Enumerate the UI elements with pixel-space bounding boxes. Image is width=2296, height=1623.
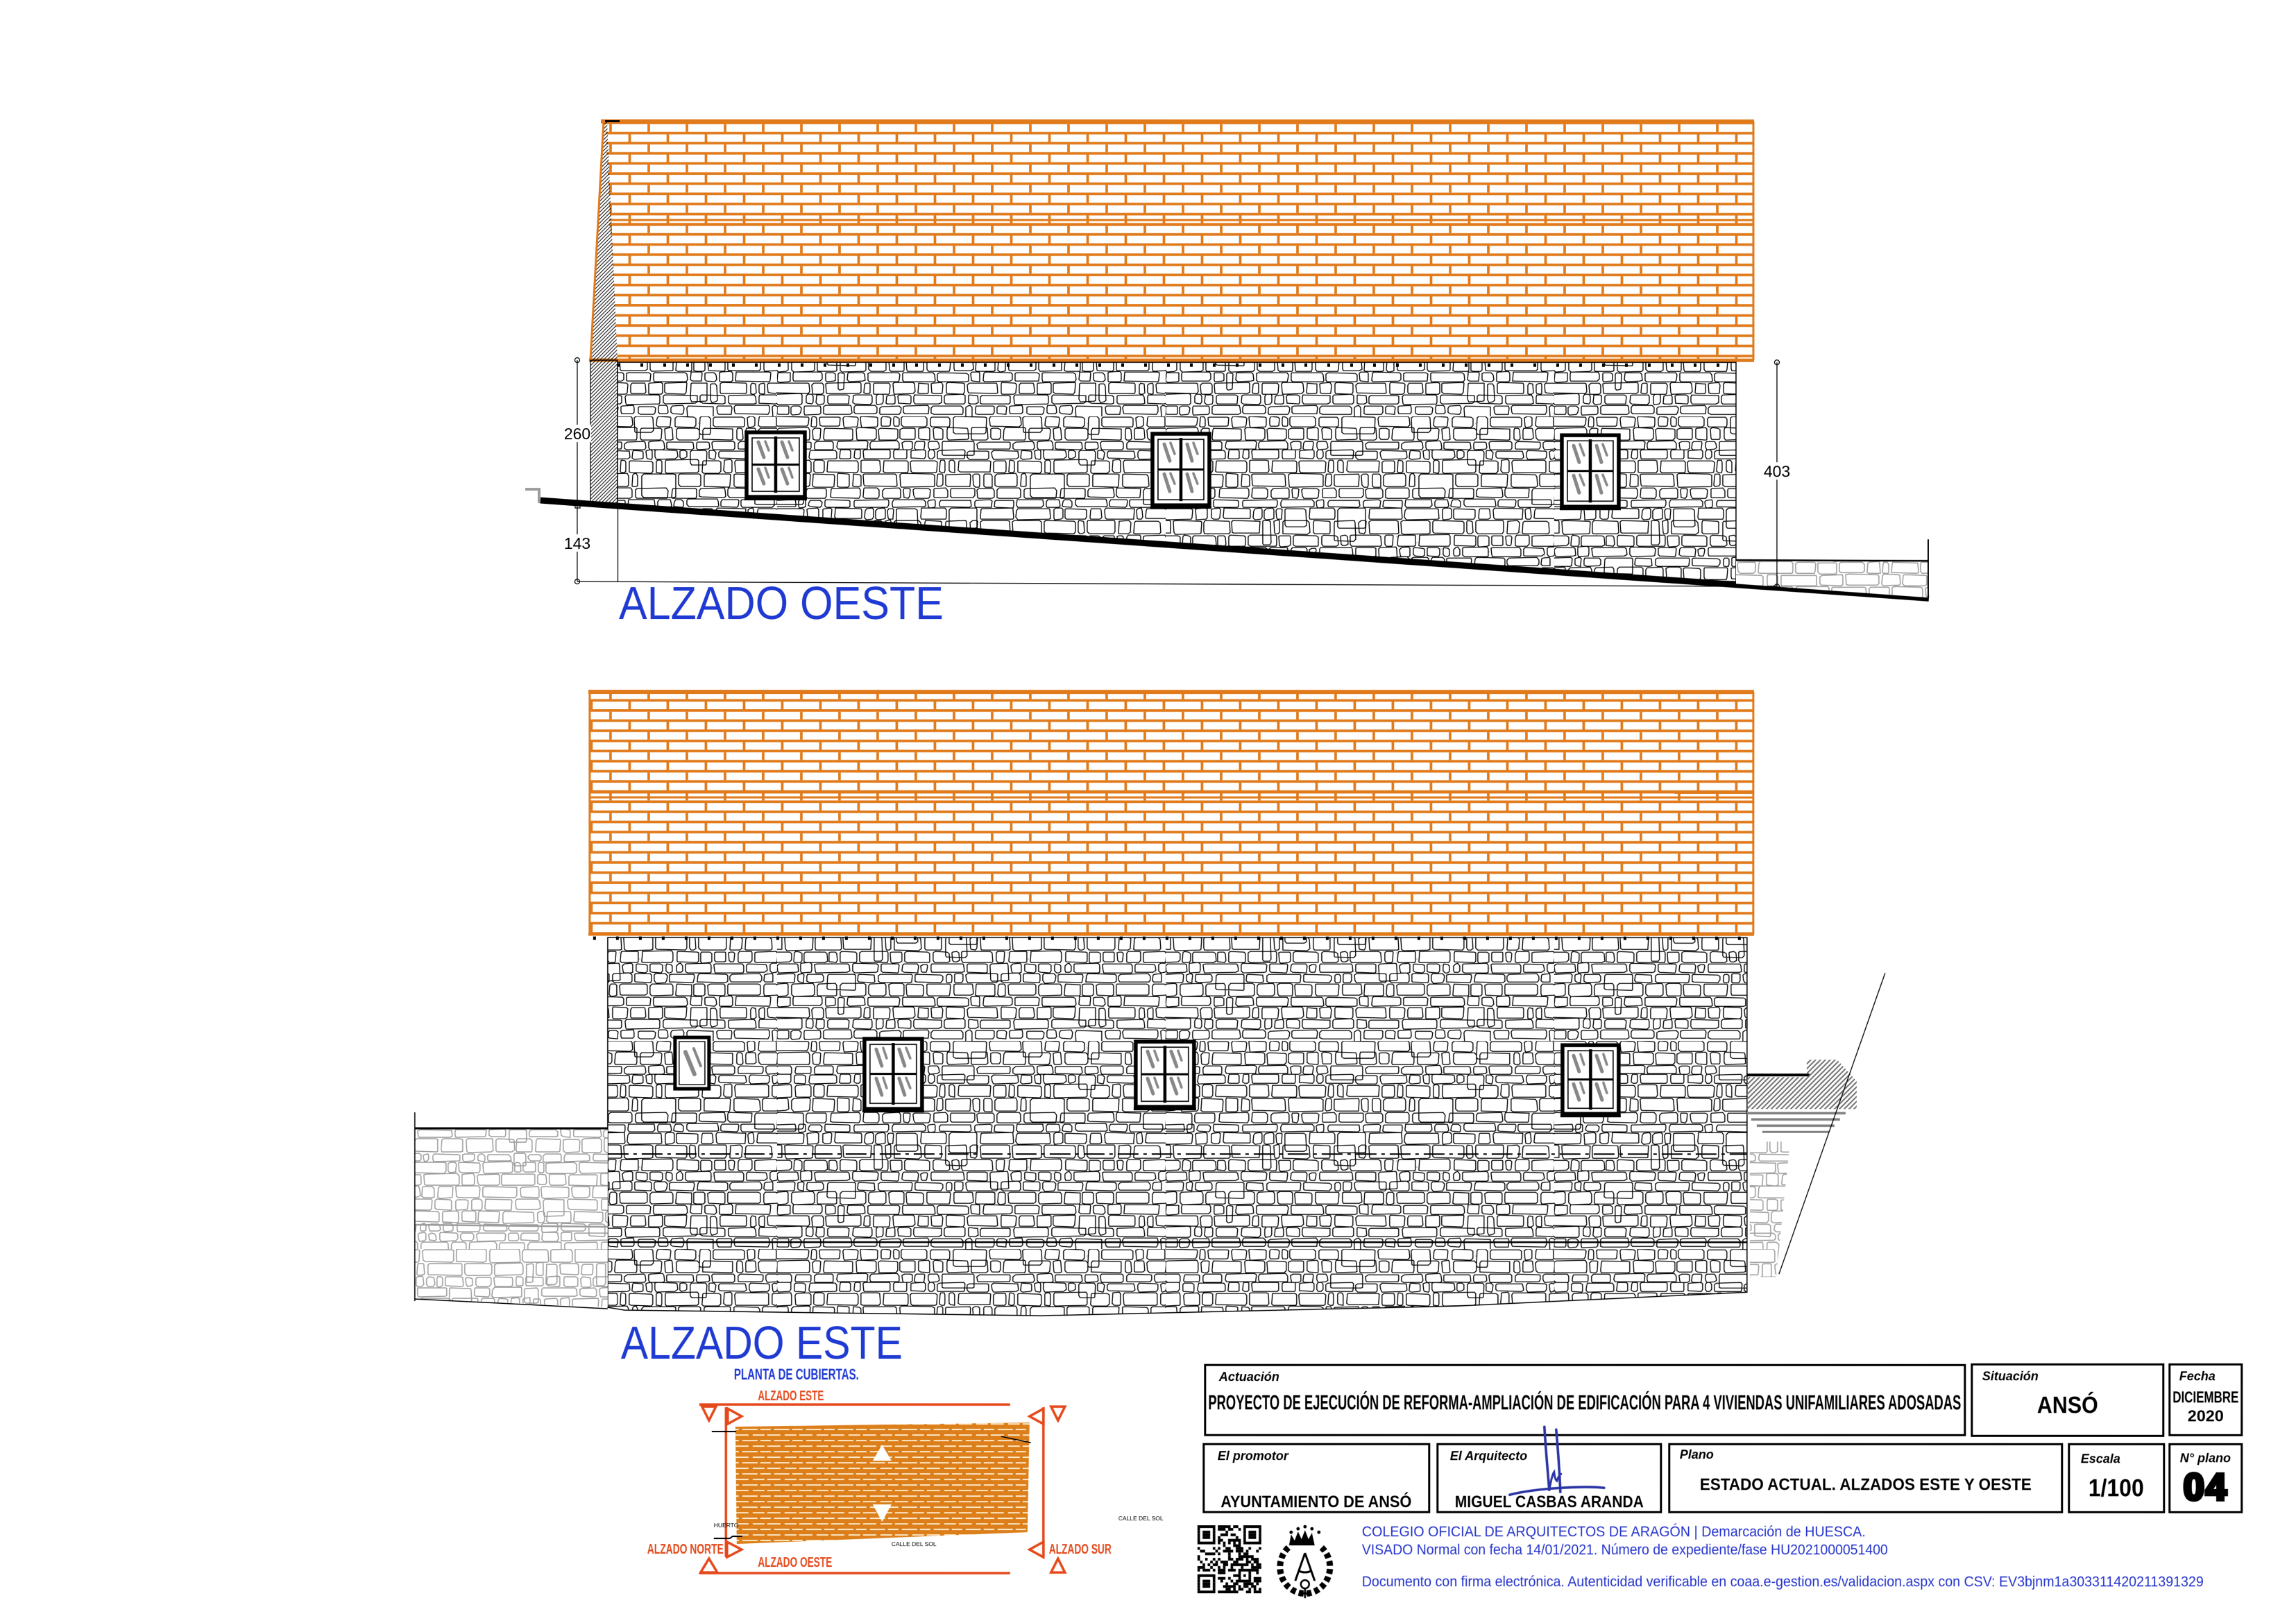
svg-text:Documento con firma electrónic: Documento con firma electrónica. Autenti…	[1362, 1574, 2204, 1590]
svg-text:VISADO Normal con fecha 14/01/: VISADO Normal con fecha 14/01/2021. Núme…	[1362, 1542, 1888, 1558]
svg-text:Fecha: Fecha	[2179, 1369, 2216, 1383]
svg-text:403: 403	[1764, 462, 1790, 480]
svg-text:ANSÓ: ANSÓ	[2037, 1392, 2098, 1418]
svg-text:HUERTO: HUERTO	[714, 1522, 739, 1529]
svg-text:CALLE DEL SOL: CALLE DEL SOL	[1119, 1515, 1164, 1522]
svg-text:2020: 2020	[2188, 1407, 2224, 1425]
svg-text:ALZADO SUR: ALZADO SUR	[1049, 1542, 1112, 1557]
svg-text:El Arquitecto: El Arquitecto	[1450, 1449, 1527, 1463]
svg-text:ALZADO OESTE: ALZADO OESTE	[758, 1555, 832, 1570]
svg-text:Escala: Escala	[2081, 1452, 2120, 1465]
svg-text:N° plano: N° plano	[2180, 1451, 2231, 1465]
svg-text:El promotor: El promotor	[1218, 1449, 1289, 1463]
svg-text:DICIEMBRE: DICIEMBRE	[2172, 1388, 2238, 1406]
svg-text:ALZADO ESTE: ALZADO ESTE	[758, 1388, 824, 1404]
svg-text:ALZADO NORTE: ALZADO NORTE	[647, 1542, 724, 1557]
svg-text:ALZADO ESTE: ALZADO ESTE	[621, 1317, 903, 1369]
svg-text:Situación: Situación	[1982, 1369, 2039, 1383]
svg-text:COLEGIO OFICIAL DE ARQUITECTOS: COLEGIO OFICIAL DE ARQUITECTOS DE ARAGÓN…	[1362, 1524, 1866, 1540]
svg-text:04: 04	[2184, 1466, 2228, 1508]
svg-text:ESTADO ACTUAL. ALZADOS ESTE Y: ESTADO ACTUAL. ALZADOS ESTE Y OESTE	[1700, 1475, 2032, 1494]
svg-text:CALLE DEL SOL: CALLE DEL SOL	[892, 1540, 937, 1547]
svg-text:ALZADO OESTE: ALZADO OESTE	[619, 577, 944, 629]
svg-text:143: 143	[564, 534, 590, 552]
svg-text:PROYECTO DE EJECUCIÓN DE REFOR: PROYECTO DE EJECUCIÓN DE REFORMA-AMPLIAC…	[1208, 1391, 1961, 1414]
svg-text:260: 260	[564, 425, 590, 443]
svg-text:MIGUEL CASBAS ARANDA: MIGUEL CASBAS ARANDA	[1455, 1493, 1644, 1511]
svg-text:PLANTA DE CUBIERTAS.: PLANTA DE CUBIERTAS.	[734, 1366, 859, 1383]
svg-text:AYUNTAMIENTO DE ANSÓ: AYUNTAMIENTO DE ANSÓ	[1221, 1492, 1411, 1511]
svg-text:1/100: 1/100	[2089, 1475, 2144, 1502]
svg-text:Plano: Plano	[1680, 1447, 1714, 1461]
svg-text:Actuación: Actuación	[1218, 1370, 1279, 1384]
